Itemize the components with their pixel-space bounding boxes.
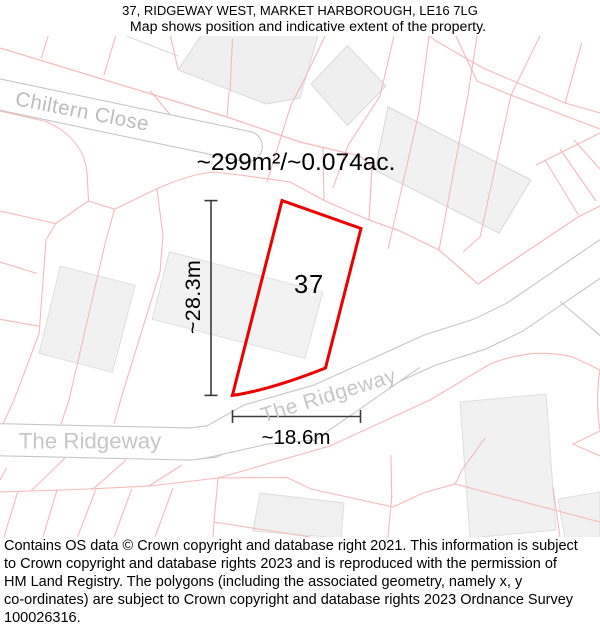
svg-text:37: 37 — [294, 271, 324, 299]
svg-text:The Ridgeway: The Ridgeway — [19, 429, 162, 454]
svg-text:~299m²/~0.074ac.: ~299m²/~0.074ac. — [197, 149, 396, 176]
svg-text:to Crown copyright and databas: to Crown copyright and database rights 2… — [4, 556, 558, 572]
svg-text:37, RIDGEWAY WEST, MARKET HARB: 37, RIDGEWAY WEST, MARKET HARBOROUGH, LE… — [122, 3, 478, 18]
svg-text:~18.6m: ~18.6m — [262, 426, 331, 449]
svg-text:~28.3m: ~28.3m — [181, 260, 205, 334]
svg-text:co-ordinates) are subject to C: co-ordinates) are subject to Crown copyr… — [4, 592, 574, 608]
svg-text:100026316.: 100026316. — [4, 610, 81, 625]
svg-text:Contains OS data © Crown copyr: Contains OS data © Crown copyright and d… — [4, 538, 578, 554]
svg-text:HM Land Registry. The polygons: HM Land Registry. The polygons (includin… — [4, 574, 523, 590]
svg-text:Map shows position and indicat: Map shows position and indicative extent… — [130, 19, 486, 35]
